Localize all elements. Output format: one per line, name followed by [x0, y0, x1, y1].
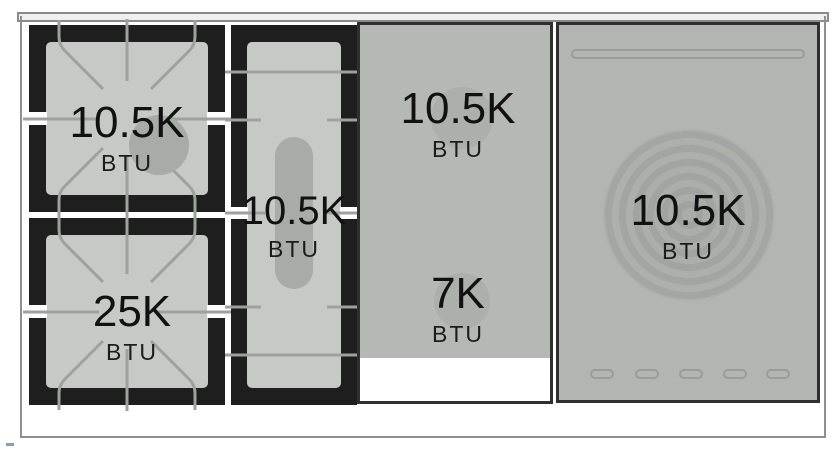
btu-unit: BTU	[93, 341, 171, 364]
btu-label-left-rear: 10.5K BTU	[70, 101, 185, 175]
btu-label-center-oval: 10.5K BTU	[242, 191, 347, 261]
vent-slot-icon	[723, 369, 747, 379]
btu-label-griddle-plate: 10.5K BTU	[631, 189, 746, 263]
vent-slot-icon	[766, 369, 790, 379]
vent-slot-icon	[679, 369, 703, 379]
vent-slot-icon	[590, 369, 614, 379]
grease-slot	[571, 49, 805, 59]
btu-unit: BTU	[631, 240, 746, 263]
btu-unit: BTU	[401, 138, 516, 161]
btu-value: 10.5K	[401, 87, 516, 131]
btu-unit: BTU	[431, 323, 485, 346]
cooktop-diagram: 10.5K BTU 25K BTU 10.5K BTU 10.5K BTU 7K…	[0, 0, 840, 456]
btu-value: 10.5K	[242, 191, 347, 231]
btu-value: 7K	[431, 272, 485, 316]
btu-unit: BTU	[242, 238, 347, 261]
btu-value: 25K	[93, 290, 171, 334]
btu-label-left-front: 25K BTU	[93, 290, 171, 364]
vent-slot-icon	[635, 369, 659, 379]
btu-value: 10.5K	[70, 101, 185, 145]
btu-label-dual-rear: 10.5K BTU	[401, 87, 516, 161]
btu-value: 10.5K	[631, 189, 746, 233]
btu-label-dual-front: 7K BTU	[431, 272, 485, 346]
stray-mark	[6, 443, 14, 446]
btu-unit: BTU	[70, 152, 185, 175]
